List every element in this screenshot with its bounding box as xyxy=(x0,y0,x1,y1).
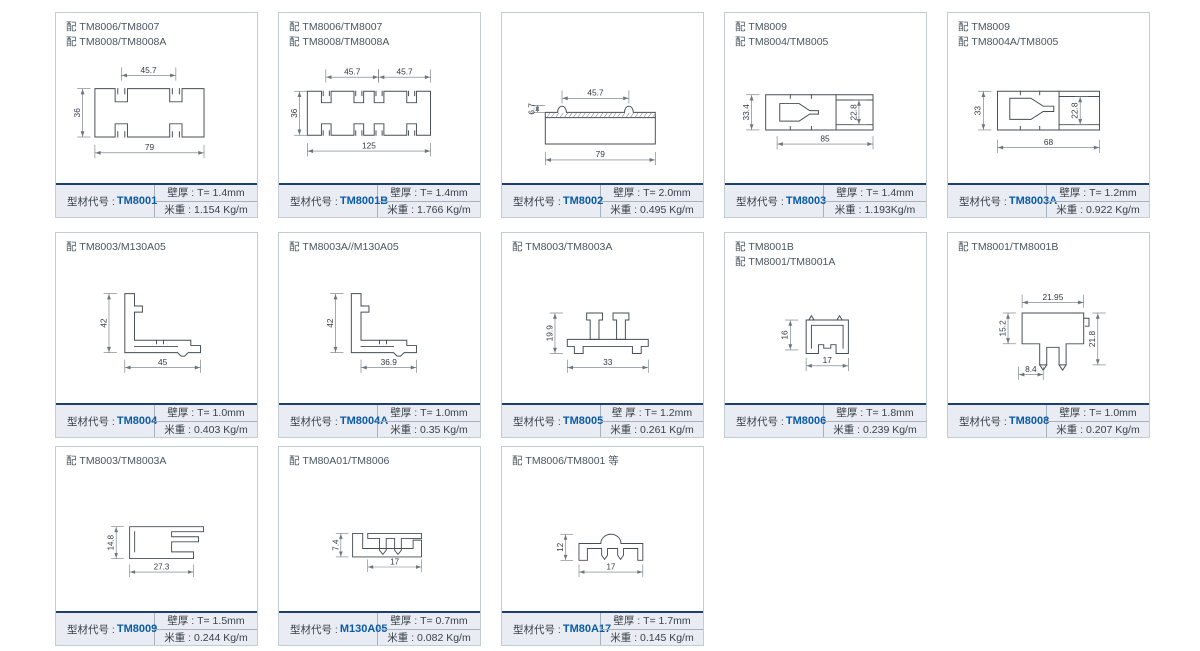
svg-text:7.4: 7.4 xyxy=(331,539,340,551)
spec-cell: 壁厚 : T= 1.0mm 米重 : 0.403 Kg/m xyxy=(155,405,257,437)
profile-drawing: 4236.9 xyxy=(279,269,480,401)
compat-line: 配 TM8004/TM8005 xyxy=(735,35,916,50)
profile-drawing: 19.933 xyxy=(502,269,703,401)
meter-weight: 米重 : 0.207 Kg/m xyxy=(1047,422,1149,438)
wall-thickness: 壁厚 : T= 1.4mm xyxy=(155,185,257,202)
card-header: 配 TM8003/TM8003A xyxy=(56,447,257,469)
profile-code: TM8003 xyxy=(786,195,826,207)
card-footer: 型材代号 : TM8008 壁厚 : T= 1.0mm 米重 : 0.207 K… xyxy=(948,403,1149,437)
meter-weight: 米重 : 0.244 Kg/m xyxy=(155,630,257,646)
compat-line: 配 TM8006/TM8001 等 xyxy=(512,454,693,469)
profile-drawing: 14.827.3 xyxy=(56,483,257,609)
meter-weight: 米重 : 0.922 Kg/m xyxy=(1047,202,1149,218)
profile-drawing: 45.745.736125 xyxy=(279,49,480,181)
svg-text:36.9: 36.9 xyxy=(381,357,398,367)
svg-text:45.7: 45.7 xyxy=(140,65,157,75)
spec-cell: 壁厚 : T= 1.8mm 米重 : 0.239 Kg/m xyxy=(824,405,926,437)
svg-text:21.8: 21.8 xyxy=(1087,330,1097,347)
profile-code-cell: 型材代号 : TM8006 xyxy=(725,405,824,437)
meter-weight: 米重 : 1.154 Kg/m xyxy=(155,202,257,218)
compat-line: 配 TM8006/TM8007 xyxy=(66,20,247,35)
profile-drawing: 45.73679 xyxy=(56,49,257,181)
svg-text:16: 16 xyxy=(780,330,790,340)
svg-text:79: 79 xyxy=(596,149,606,159)
svg-text:36: 36 xyxy=(289,108,299,118)
wall-thickness: 壁厚 : T= 0.7mm xyxy=(378,613,480,630)
svg-text:8.4: 8.4 xyxy=(1025,364,1037,374)
svg-text:17: 17 xyxy=(390,557,399,566)
card-footer: 型材代号 : TM8003 壁厚 : T= 1.4mm 米重 : 1.193Kg… xyxy=(725,183,926,217)
profile-card: 配 TM8003A//M130A05 4236.9 型材代号 : TM8004A… xyxy=(278,232,481,438)
card-header: 配 TM8006/TM8007配 TM8008/TM8008A xyxy=(56,13,257,50)
spec-cell: 壁厚 : T= 1.7mm 米重 : 0.145 Kg/m xyxy=(601,613,703,645)
spec-cell: 壁厚 : T= 0.7mm 米重 : 0.082 Kg/m xyxy=(378,613,480,645)
profile-card: 配 TM80A01/TM8006 7.417 型材代号 : M130A05 壁厚… xyxy=(278,446,481,646)
profile-code-cell: 型材代号 : TM8001 xyxy=(56,185,155,217)
profile-drawing: 21.9515.221.88.4 xyxy=(948,269,1149,401)
meter-weight: 米重 : 0.082 Kg/m xyxy=(378,630,480,646)
profile-drawing: 1617 xyxy=(725,269,926,401)
profile-code-cell: 型材代号 : TM8003 xyxy=(725,185,824,217)
svg-text:21.95: 21.95 xyxy=(1042,292,1063,302)
svg-text:15.2: 15.2 xyxy=(997,320,1007,337)
profile-card: 配 TM8006/TM8001 等 1217 型材代号 : TM80A17 壁厚… xyxy=(501,446,704,646)
compat-line: 配 TM8003/TM8003A xyxy=(66,454,247,469)
profile-drawing: 4245 xyxy=(56,269,257,401)
profile-card: 配 TM8003/TM8003A 19.933 型材代号 : TM8005 壁 … xyxy=(501,232,704,438)
profile-drawing: 6.745.779 xyxy=(502,49,703,181)
profile-code-cell: 型材代号 : TM8004A xyxy=(279,405,378,437)
card-header: 配 TM8003/TM8003A xyxy=(502,233,703,255)
profile-code: TM8006 xyxy=(786,415,826,427)
profile-card: 配 TM8009配 TM8004/TM8005 33.422.885 型材代号 … xyxy=(724,12,927,218)
svg-text:17: 17 xyxy=(823,355,833,365)
svg-text:45.7: 45.7 xyxy=(587,88,604,98)
meter-weight: 米重 : 0.403 Kg/m xyxy=(155,422,257,438)
compat-line: 配 TM8003/M130A05 xyxy=(66,240,247,255)
card-footer: 型材代号 : TM8001 壁厚 : T= 1.4mm 米重 : 1.154 K… xyxy=(56,183,257,217)
profile-code-label: 型材代号 : xyxy=(290,414,338,429)
wall-thickness: 壁 厚 : T= 1.2mm xyxy=(601,405,703,422)
profile-drawing: 1217 xyxy=(502,483,703,609)
meter-weight: 米重 : 0.35 Kg/m xyxy=(378,422,480,438)
wall-thickness: 壁厚 : T= 2.0mm xyxy=(601,185,703,202)
card-header: 配 TM8009配 TM8004/TM8005 xyxy=(725,13,926,50)
card-footer: 型材代号 : TM8009 壁厚 : T= 1.5mm 米重 : 0.244 K… xyxy=(56,611,257,645)
svg-text:36: 36 xyxy=(72,108,82,118)
svg-text:85: 85 xyxy=(820,133,830,143)
svg-text:22.8: 22.8 xyxy=(1070,102,1080,119)
svg-text:6.7: 6.7 xyxy=(527,103,537,115)
wall-thickness: 壁厚 : T= 1.4mm xyxy=(378,185,480,202)
spec-cell: 壁厚 : T= 1.4mm 米重 : 1.766 Kg/m xyxy=(378,185,480,217)
profile-code-label: 型材代号 : xyxy=(513,622,561,637)
meter-weight: 米重 : 1.766 Kg/m xyxy=(378,202,480,218)
compat-line: 配 TM80A01/TM8006 xyxy=(289,454,470,469)
profile-code-cell: 型材代号 : M130A05 xyxy=(279,613,378,645)
card-footer: 型材代号 : TM8005 壁 厚 : T= 1.2mm 米重 : 0.261 … xyxy=(502,403,703,437)
profile-code-label: 型材代号 : xyxy=(290,194,338,209)
card-header: 配 TM8003A//M130A05 xyxy=(279,233,480,255)
profile-code-cell: 型材代号 : TM80A17 xyxy=(502,613,601,645)
spec-cell: 壁 厚 : T= 1.2mm 米重 : 0.261 Kg/m xyxy=(601,405,703,437)
card-footer: 型材代号 : TM8004A 壁厚 : T= 1.0mm 米重 : 0.35 K… xyxy=(279,403,480,437)
wall-thickness: 壁厚 : T= 1.0mm xyxy=(155,405,257,422)
card-header: 配 TM8001/TM8001B xyxy=(948,233,1149,255)
meter-weight: 米重 : 1.193Kg/m xyxy=(824,202,926,218)
profile-card: 配 TM8006/TM8007配 TM8008/TM8008A 45.745.7… xyxy=(278,12,481,218)
compat-line: 配 TM8006/TM8007 xyxy=(289,20,470,35)
svg-text:45.7: 45.7 xyxy=(396,67,413,77)
card-header: 配 TM8001B配 TM8001/TM8001A xyxy=(725,233,926,270)
profile-code: TM8001 xyxy=(117,195,157,207)
compat-line: 配 TM8009 xyxy=(735,20,916,35)
profile-card: 配 TM8001B配 TM8001/TM8001A 1617 型材代号 : TM… xyxy=(724,232,927,438)
wall-thickness: 壁厚 : T= 1.2mm xyxy=(1047,185,1149,202)
svg-text:14.8: 14.8 xyxy=(107,534,116,550)
svg-text:19.9: 19.9 xyxy=(544,325,554,342)
meter-weight: 米重 : 0.261 Kg/m xyxy=(601,422,703,438)
card-footer: 型材代号 : TM8001B 壁厚 : T= 1.4mm 米重 : 1.766 … xyxy=(279,183,480,217)
wall-thickness: 壁厚 : T= 1.0mm xyxy=(1047,405,1149,422)
compat-line: 配 TM8008/TM8008A xyxy=(289,35,470,50)
svg-text:27.3: 27.3 xyxy=(154,563,170,572)
catalog-board: 配 TM8006/TM8007配 TM8008/TM8008A 45.73679… xyxy=(0,0,1200,651)
spec-cell: 壁厚 : T= 1.0mm 米重 : 0.207 Kg/m xyxy=(1047,405,1149,437)
profile-card: 配 TM8003/M130A05 4245 型材代号 : TM8004 壁厚 :… xyxy=(55,232,258,438)
card-header: 配 TM80A01/TM8006 xyxy=(279,447,480,469)
profile-code-label: 型材代号 : xyxy=(736,414,784,429)
profile-card: 配 TM8006/TM8007配 TM8008/TM8008A 45.73679… xyxy=(55,12,258,218)
wall-thickness: 壁厚 : T= 1.7mm xyxy=(601,613,703,630)
svg-text:45.7: 45.7 xyxy=(344,67,361,77)
spec-cell: 壁厚 : T= 1.2mm 米重 : 0.922 Kg/m xyxy=(1047,185,1149,217)
profile-code: TM8004 xyxy=(117,415,157,427)
spec-cell: 壁厚 : T= 1.0mm 米重 : 0.35 Kg/m xyxy=(378,405,480,437)
card-footer: 型材代号 : TM8006 壁厚 : T= 1.8mm 米重 : 0.239 K… xyxy=(725,403,926,437)
profile-code-cell: 型材代号 : TM8008 xyxy=(948,405,1047,437)
svg-text:33: 33 xyxy=(973,106,983,116)
spec-cell: 壁厚 : T= 1.5mm 米重 : 0.244 Kg/m xyxy=(155,613,257,645)
profile-code-label: 型材代号 : xyxy=(67,194,115,209)
profile-code-cell: 型材代号 : TM8004 xyxy=(56,405,155,437)
profile-code-label: 型材代号 : xyxy=(959,414,1007,429)
card-header: 配 TM8006/TM8001 等 xyxy=(502,447,703,469)
svg-text:125: 125 xyxy=(362,140,376,150)
spec-cell: 壁厚 : T= 2.0mm 米重 : 0.495 Kg/m xyxy=(601,185,703,217)
profile-code-label: 型材代号 : xyxy=(290,622,338,637)
wall-thickness: 壁厚 : T= 1.0mm xyxy=(378,405,480,422)
svg-text:33: 33 xyxy=(603,357,613,367)
card-header: 配 TM8006/TM8007配 TM8008/TM8008A xyxy=(279,13,480,50)
profile-code-cell: 型材代号 : TM8005 xyxy=(502,405,601,437)
profile-code-label: 型材代号 : xyxy=(513,414,561,429)
spec-cell: 壁厚 : T= 1.4mm 米重 : 1.154 Kg/m xyxy=(155,185,257,217)
profile-code-label: 型材代号 : xyxy=(67,414,115,429)
profile-code: TM8005 xyxy=(563,415,603,427)
compat-line: 配 TM8008/TM8008A xyxy=(66,35,247,50)
compat-line: 配 TM8001/TM8001A xyxy=(735,255,916,270)
card-header xyxy=(502,13,703,20)
card-header: 配 TM8003/M130A05 xyxy=(56,233,257,255)
card-footer: 型材代号 : TM8004 壁厚 : T= 1.0mm 米重 : 0.403 K… xyxy=(56,403,257,437)
meter-weight: 米重 : 0.145 Kg/m xyxy=(601,630,703,646)
compat-line: 配 TM8004A/TM8005 xyxy=(958,35,1139,50)
compat-line: 配 TM8003/TM8003A xyxy=(512,240,693,255)
meter-weight: 米重 : 0.495 Kg/m xyxy=(601,202,703,218)
svg-text:17: 17 xyxy=(606,563,615,572)
profile-card: 配 TM8003/TM8003A 14.827.3 型材代号 : TM8009 … xyxy=(55,446,258,646)
svg-text:79: 79 xyxy=(145,142,155,152)
profile-card: 配 TM8009配 TM8004A/TM8005 3322.868 型材代号 :… xyxy=(947,12,1150,218)
spec-cell: 壁厚 : T= 1.4mm 米重 : 1.193Kg/m xyxy=(824,185,926,217)
compat-line: 配 TM8001B xyxy=(735,240,916,255)
compat-line: 配 TM8001/TM8001B xyxy=(958,240,1139,255)
svg-text:12: 12 xyxy=(556,542,565,551)
compat-line: 配 TM8003A//M130A05 xyxy=(289,240,470,255)
profile-drawing: 33.422.885 xyxy=(725,49,926,181)
profile-code-cell: 型材代号 : TM8009 xyxy=(56,613,155,645)
compat-line: 配 TM8009 xyxy=(958,20,1139,35)
profile-code-label: 型材代号 : xyxy=(513,194,561,209)
svg-text:42: 42 xyxy=(98,318,108,328)
svg-text:33.4: 33.4 xyxy=(741,104,751,121)
profile-code-label: 型材代号 : xyxy=(67,622,115,637)
profile-code-cell: 型材代号 : TM8003A xyxy=(948,185,1047,217)
svg-text:42: 42 xyxy=(325,318,335,328)
svg-text:22.8: 22.8 xyxy=(848,104,858,121)
card-footer: 型材代号 : M130A05 壁厚 : T= 0.7mm 米重 : 0.082 … xyxy=(279,611,480,645)
profile-card: 6.745.779 型材代号 : TM8002 壁厚 : T= 2.0mm 米重… xyxy=(501,12,704,218)
wall-thickness: 壁厚 : T= 1.5mm xyxy=(155,613,257,630)
svg-text:68: 68 xyxy=(1044,137,1054,147)
profile-code-label: 型材代号 : xyxy=(959,194,1007,209)
profile-drawing: 3322.868 xyxy=(948,49,1149,181)
profile-code: TM8002 xyxy=(563,195,603,207)
profile-card: 配 TM8001/TM8001B 21.9515.221.88.4 型材代号 :… xyxy=(947,232,1150,438)
svg-text:45: 45 xyxy=(158,357,168,367)
profile-code-label: 型材代号 : xyxy=(736,194,784,209)
profile-code-cell: 型材代号 : TM8001B xyxy=(279,185,378,217)
card-footer: 型材代号 : TM8002 壁厚 : T= 2.0mm 米重 : 0.495 K… xyxy=(502,183,703,217)
wall-thickness: 壁厚 : T= 1.8mm xyxy=(824,405,926,422)
profile-code-cell: 型材代号 : TM8002 xyxy=(502,185,601,217)
card-footer: 型材代号 : TM8003A 壁厚 : T= 1.2mm 米重 : 0.922 … xyxy=(948,183,1149,217)
profile-drawing: 7.417 xyxy=(279,483,480,609)
profile-code: TM8008 xyxy=(1009,415,1049,427)
profile-code: TM8009 xyxy=(117,623,157,635)
card-footer: 型材代号 : TM80A17 壁厚 : T= 1.7mm 米重 : 0.145 … xyxy=(502,611,703,645)
meter-weight: 米重 : 0.239 Kg/m xyxy=(824,422,926,438)
wall-thickness: 壁厚 : T= 1.4mm xyxy=(824,185,926,202)
card-header: 配 TM8009配 TM8004A/TM8005 xyxy=(948,13,1149,50)
